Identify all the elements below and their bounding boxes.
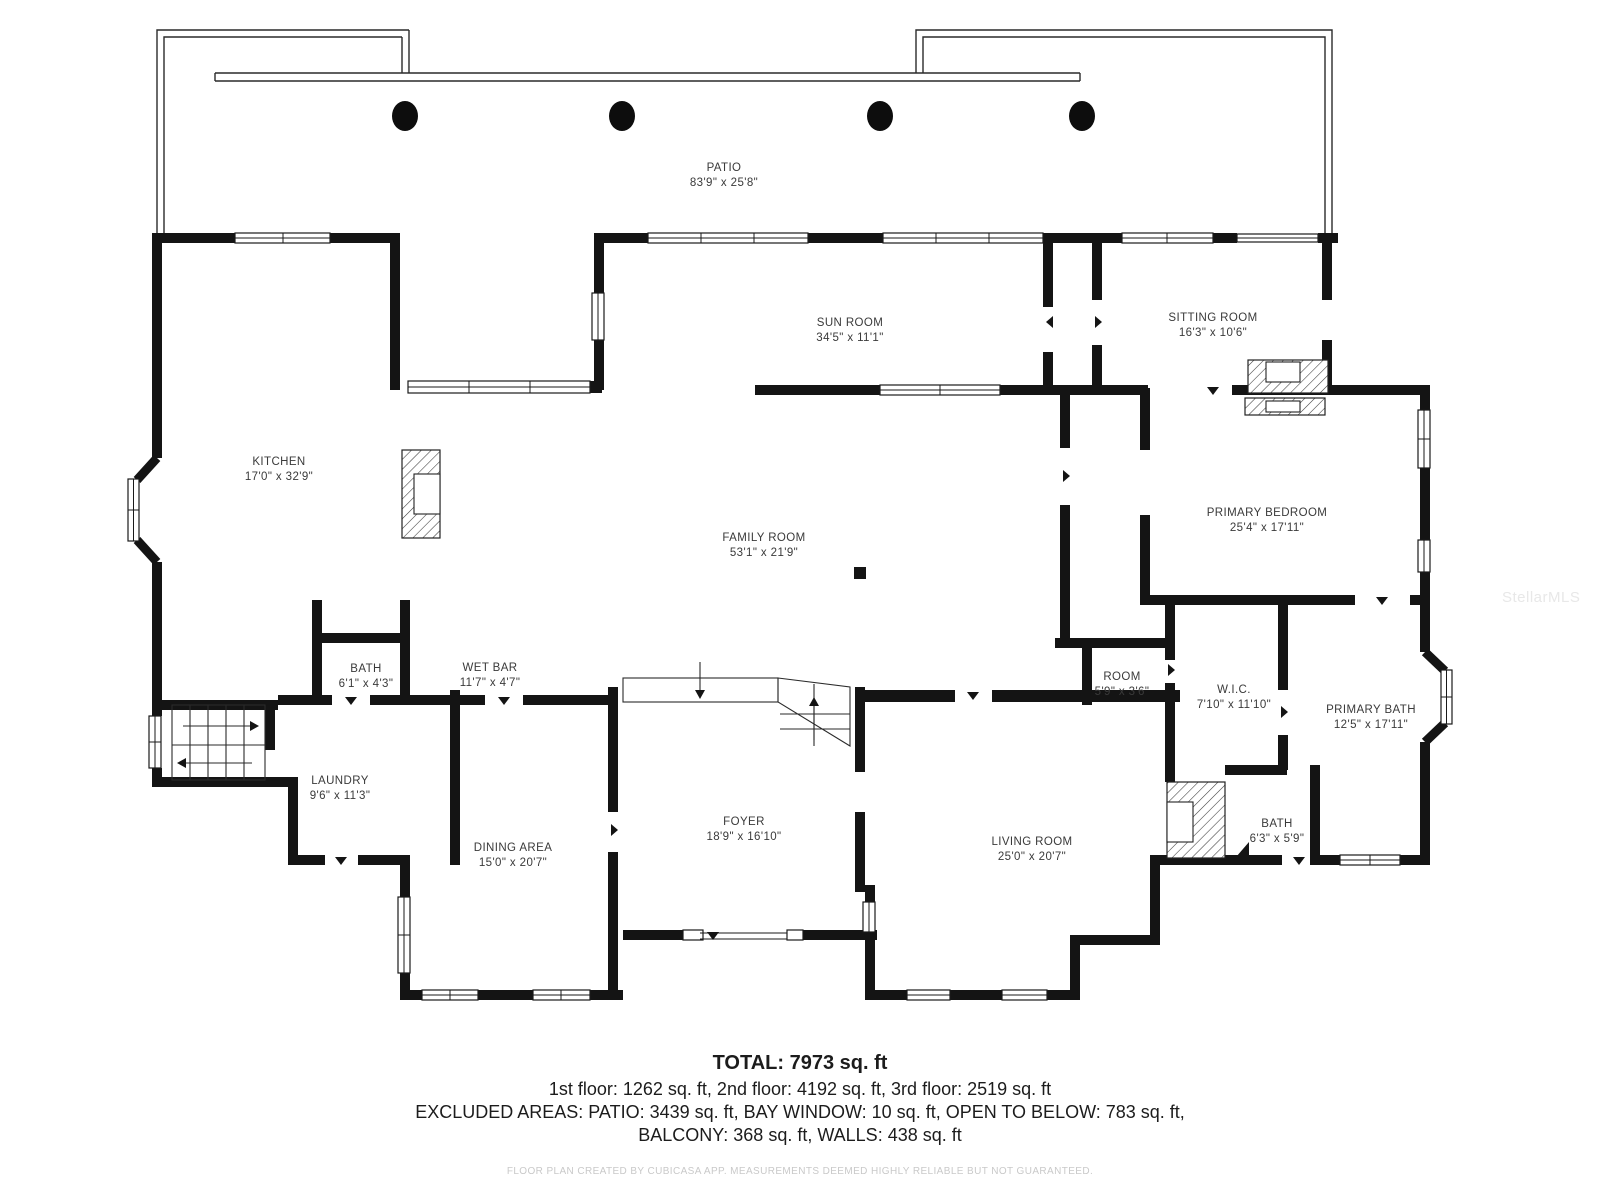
stellar-mls-watermark: StellarMLS xyxy=(1502,589,1580,606)
floor-plan-page: PATIO 83'9" x 25'8" SUN ROOM 34'5" x 11'… xyxy=(0,0,1600,1200)
room-label-room: ROOM 5'9" x 3'6" xyxy=(1095,670,1150,700)
floor-areas-text: 1st floor: 1262 sq. ft, 2nd floor: 4192 … xyxy=(0,1079,1600,1100)
room-label-sitting-room: SITTING ROOM 16'3" x 10'6" xyxy=(1168,311,1257,341)
room-label-dining-area: DINING AREA 15'0" x 20'7" xyxy=(474,841,553,871)
room-label-family-room: FAMILY ROOM 53'1" x 21'9" xyxy=(722,531,805,561)
room-label-bath-lower: BATH 6'3" x 5'9" xyxy=(1250,817,1305,847)
excluded-areas-text-2: BALCONY: 368 sq. ft, WALLS: 438 sq. ft xyxy=(0,1125,1600,1146)
windows xyxy=(149,233,1430,1000)
bay-window-kitchen xyxy=(128,458,157,562)
kitchen-island xyxy=(402,450,440,538)
patio-balcony-outline xyxy=(157,30,1332,237)
room-label-primary-bedroom: PRIMARY BEDROOM 25'4" x 17'11" xyxy=(1207,506,1328,536)
room-label-patio: PATIO 83'9" x 25'8" xyxy=(690,161,758,191)
disclaimer-text: FLOOR PLAN CREATED BY CUBICASA APP. MEAS… xyxy=(0,1166,1600,1177)
excluded-areas-text-1: EXCLUDED AREAS: PATIO: 3439 sq. ft, BAY … xyxy=(0,1102,1600,1123)
floor-plan-drawing xyxy=(0,0,1600,1200)
stairs-left xyxy=(172,705,265,780)
room-label-laundry: LAUNDRY 9'6" x 11'3" xyxy=(310,774,371,804)
walls xyxy=(152,233,1430,1000)
room-label-primary-bath: PRIMARY BATH 12'5" x 17'11" xyxy=(1326,703,1416,733)
room-label-wic: W.I.C. 7'10" x 11'10" xyxy=(1197,683,1271,713)
patio-columns xyxy=(392,101,1095,131)
room-label-foyer: FOYER 18'9" x 16'10" xyxy=(706,815,781,845)
total-area-text: TOTAL: 7973 sq. ft xyxy=(0,1052,1600,1075)
room-label-wet-bar: WET BAR 11'7" x 4'7" xyxy=(460,661,521,691)
room-label-bath-upper: BATH 6'1" x 4'3" xyxy=(339,662,394,692)
bay-window-primary-bath xyxy=(1425,652,1452,742)
fireplace-living-room xyxy=(1167,782,1225,858)
room-label-sun-room: SUN ROOM 34'5" x 11'1" xyxy=(816,316,883,346)
fireplace-sitting-room xyxy=(1245,360,1328,415)
stairs-foyer xyxy=(623,662,850,746)
room-label-living-room: LIVING ROOM 25'0" x 20'7" xyxy=(991,835,1072,865)
room-label-kitchen: KITCHEN 17'0" x 32'9" xyxy=(245,455,313,485)
